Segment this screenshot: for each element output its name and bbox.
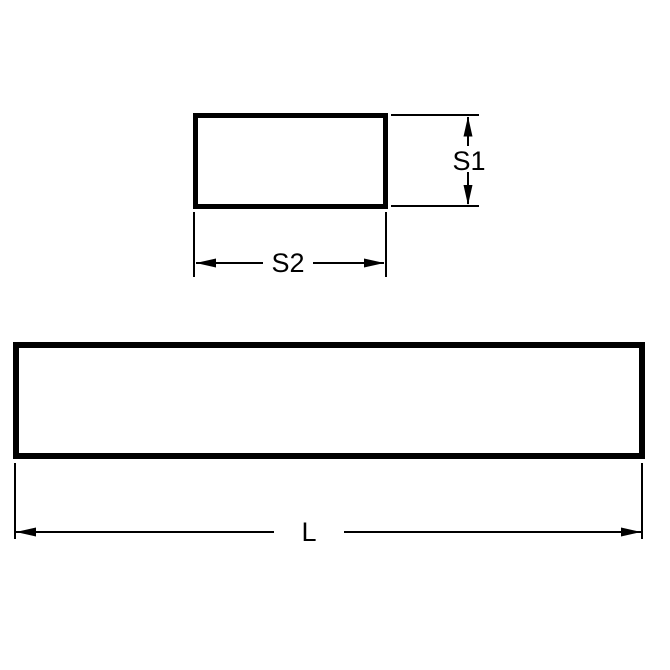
s1-label: S1 [452, 146, 485, 176]
technical-drawing-canvas: S1 S2 L [0, 0, 670, 670]
s1-arrowhead-up [464, 117, 473, 137]
keystock-dimension-drawing: S1 S2 L [0, 0, 670, 670]
cross-section-rect [196, 116, 386, 207]
s1-arrowhead-down [464, 185, 473, 205]
s1-dimension: S1 [391, 115, 488, 206]
s2-arrowhead-left [196, 259, 216, 268]
l-arrowhead-right [621, 528, 641, 537]
side-view-rect [16, 345, 642, 456]
s2-dimension: S2 [194, 212, 386, 278]
l-dimension: L [15, 463, 642, 547]
cross-section-view [196, 116, 386, 207]
side-view [16, 345, 642, 456]
l-label: L [301, 517, 316, 547]
s2-label: S2 [271, 248, 304, 278]
s2-arrowhead-right [364, 259, 384, 268]
l-arrowhead-left [16, 528, 36, 537]
